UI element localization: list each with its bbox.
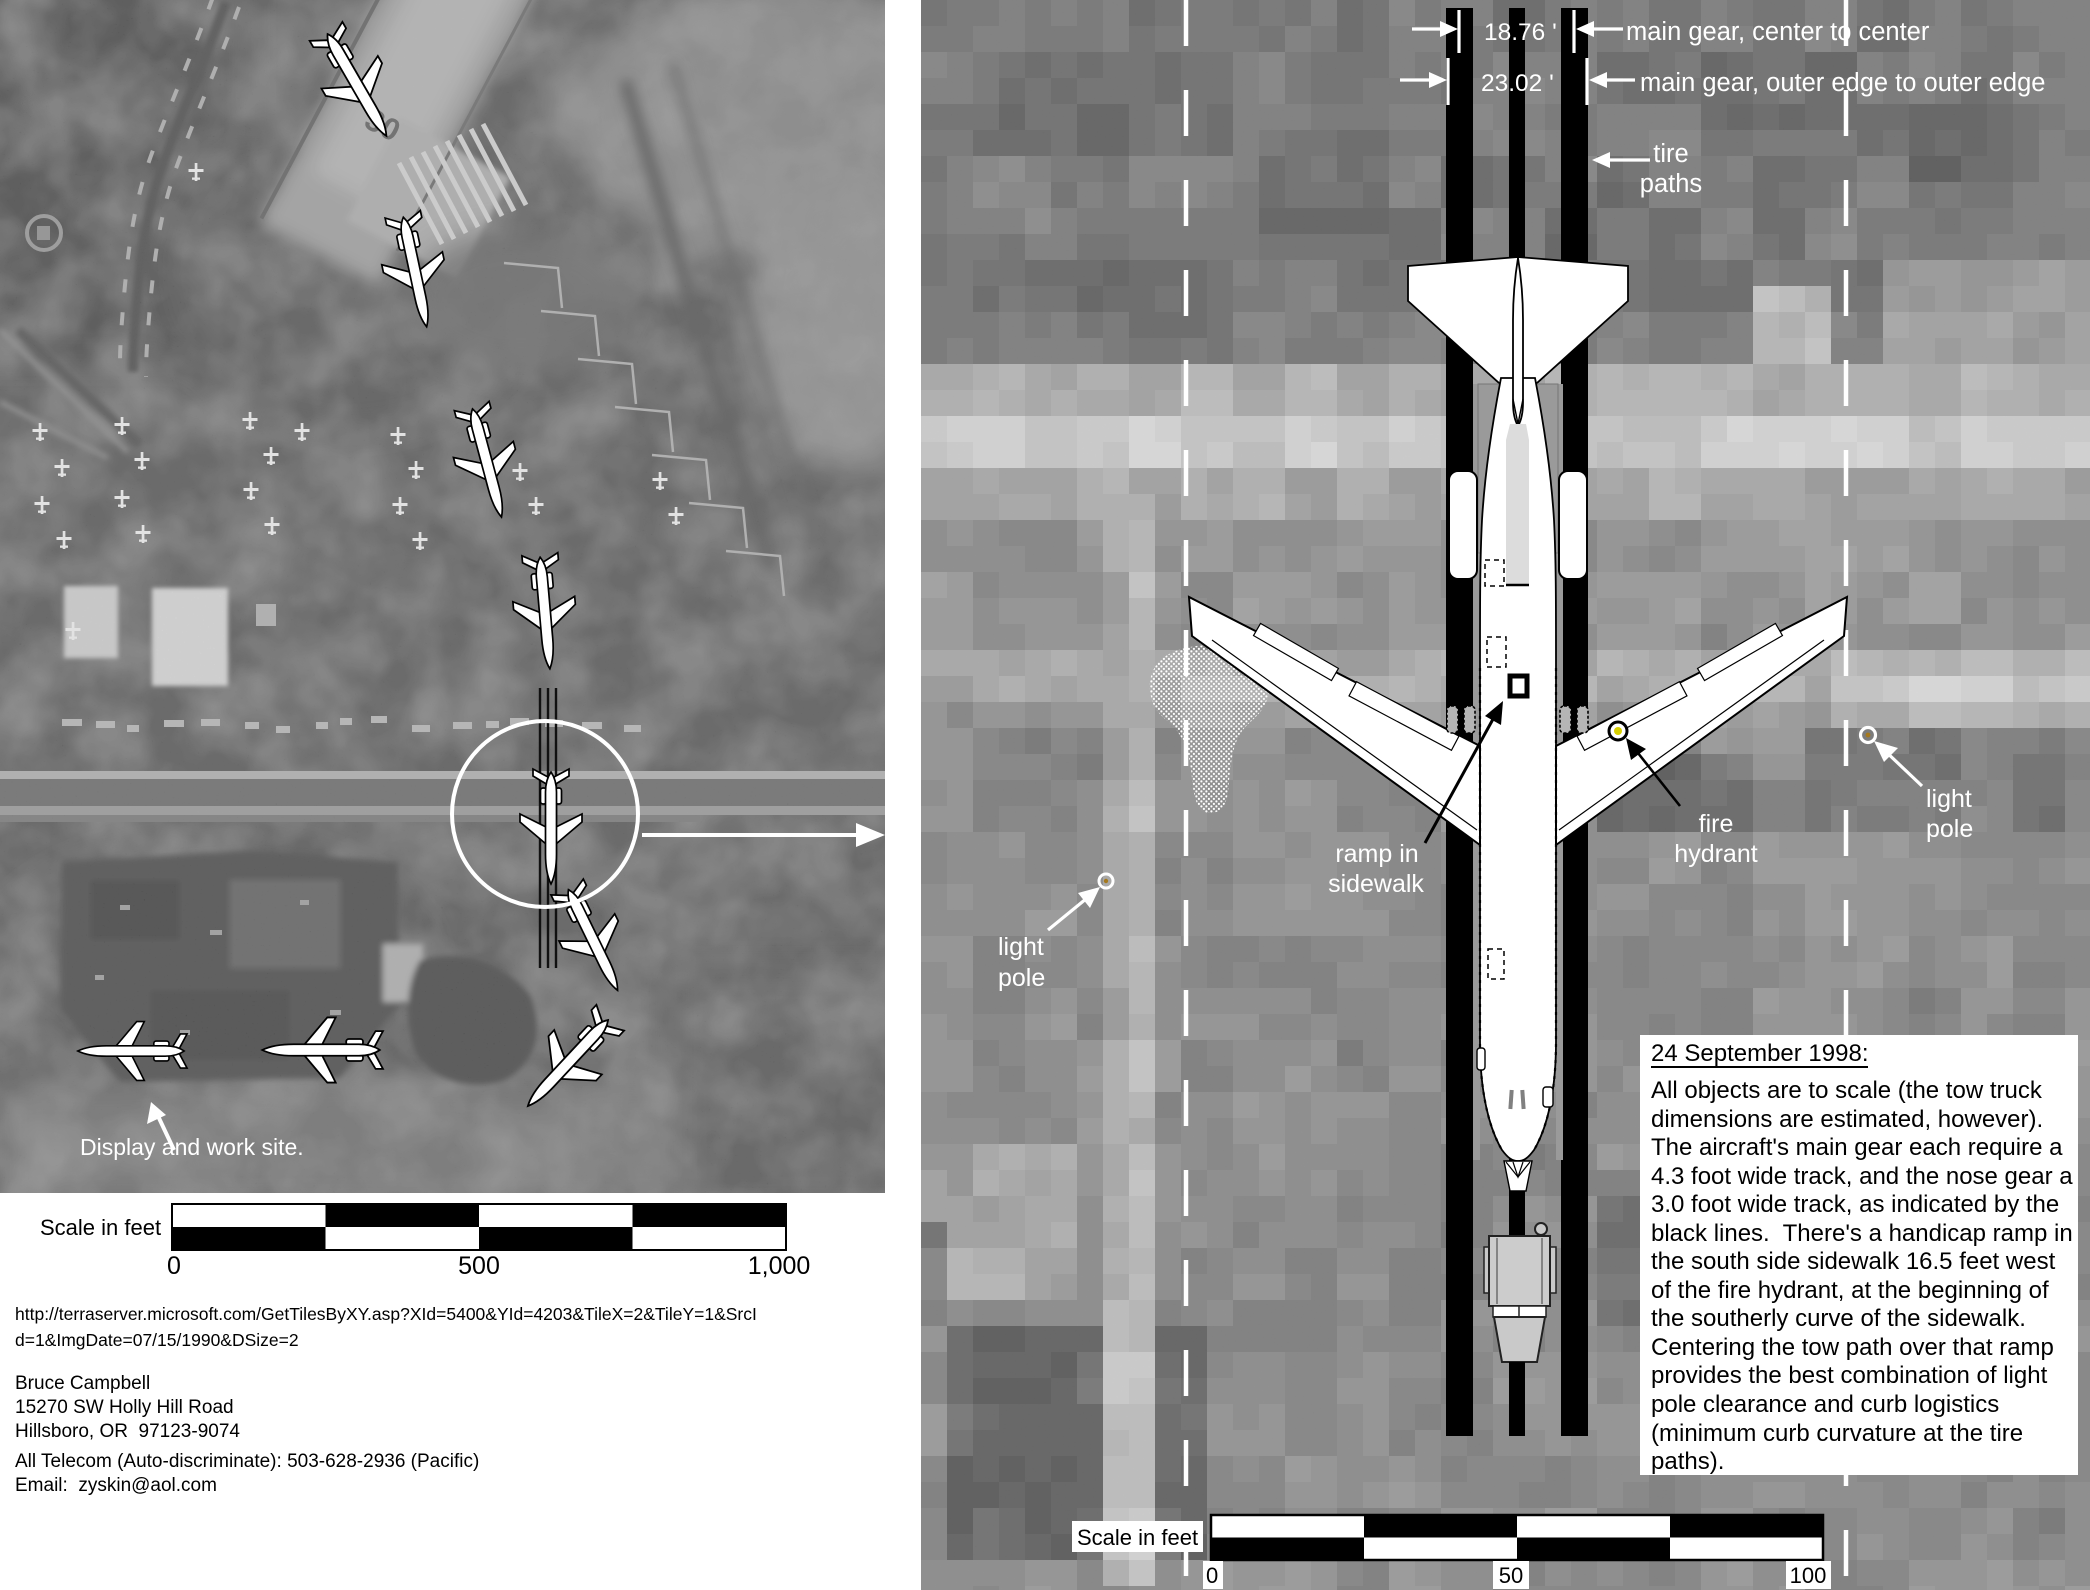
svg-text:the south side sidewalk 16.5 f: the south side sidewalk 16.5 feet west [1651, 1248, 2056, 1275]
svg-text:15270 SW Holly Hill Road: 15270 SW Holly Hill Road [15, 1397, 234, 1418]
svg-text:Centering the tow path over th: Centering the tow path over that ramp [1651, 1334, 2054, 1361]
svg-text:http://terraserver.microsoft.c: http://terraserver.microsoft.com/GetTile… [15, 1304, 757, 1324]
svg-text:Scale in feet: Scale in feet [1077, 1525, 1198, 1550]
svg-text:light: light [998, 933, 1044, 961]
svg-text:All objects are to scale (the: All objects are to scale (the tow truck [1651, 1077, 2043, 1104]
svg-text:Hillsboro, OR 97123-9074: Hillsboro, OR 97123-9074 [15, 1421, 240, 1442]
svg-text:0: 0 [1206, 1563, 1218, 1588]
svg-text:pole: pole [998, 964, 1045, 992]
svg-text:(minimum curb curvature at the: (minimum curb curvature at the tire [1651, 1420, 2023, 1447]
svg-text:The aircraft's main gear each: The aircraft's main gear each require a [1651, 1134, 2063, 1161]
svg-text:sidewalk: sidewalk [1328, 870, 1424, 898]
svg-text:of the fire hydrant, at the be: of the fire hydrant, at the beginning of [1651, 1277, 2049, 1304]
svg-text:main gear, outer edge to outer: main gear, outer edge to outer edge [1640, 69, 2045, 97]
svg-text:main gear, center to center: main gear, center to center [1626, 18, 1930, 46]
svg-text:18.76 ': 18.76 ' [1484, 19, 1557, 46]
svg-text:hydrant: hydrant [1674, 840, 1757, 868]
svg-text:Email: zyskin@aol.com: Email: zyskin@aol.com [15, 1475, 217, 1496]
svg-text:3.0 foot wide track, as indica: 3.0 foot wide track, as indicated by the [1651, 1191, 2059, 1218]
svg-text:500: 500 [458, 1252, 500, 1280]
svg-text:paths).: paths). [1651, 1448, 1724, 1475]
svg-text:4.3 foot wide track, and the n: 4.3 foot wide track, and the nose gear a [1651, 1163, 2073, 1190]
svg-text:d=1&ImgDate=07/15/1990&DSize=2: d=1&ImgDate=07/15/1990&DSize=2 [15, 1330, 299, 1350]
svg-text:All Telecom (Auto-discriminate: All Telecom (Auto-discriminate): 503-628… [15, 1451, 479, 1472]
svg-text:ramp in: ramp in [1335, 840, 1418, 868]
svg-text:Display and work site.: Display and work site. [80, 1134, 304, 1160]
svg-text:1,000: 1,000 [748, 1252, 811, 1280]
svg-text:Scale in feet: Scale in feet [40, 1215, 161, 1240]
svg-text:fire: fire [1699, 810, 1734, 838]
svg-text:dimensions are estimated, howe: dimensions are estimated, however). [1651, 1106, 2043, 1133]
svg-text:provides the best combination: provides the best combination of light [1651, 1362, 2048, 1389]
svg-text:the southerly curve of the sid: the southerly curve of the sidewalk. [1651, 1305, 2026, 1332]
svg-text:tire: tire [1653, 140, 1688, 168]
svg-text:light: light [1926, 785, 1972, 813]
svg-text:black lines. There's a handic: black lines. There's a handicap ramp in [1651, 1220, 2073, 1247]
svg-text:pole clearance and curb logist: pole clearance and curb logistics [1651, 1391, 1999, 1418]
svg-text:50: 50 [1499, 1563, 1523, 1588]
svg-text:24 September 1998:: 24 September 1998: [1651, 1040, 1869, 1067]
svg-text:pole: pole [1926, 815, 1973, 843]
svg-text:paths: paths [1640, 170, 1702, 198]
svg-text:Bruce Campbell: Bruce Campbell [15, 1373, 150, 1394]
svg-text:0: 0 [167, 1252, 181, 1280]
svg-text:100: 100 [1790, 1563, 1827, 1588]
svg-text:23.02 ': 23.02 ' [1481, 70, 1554, 97]
